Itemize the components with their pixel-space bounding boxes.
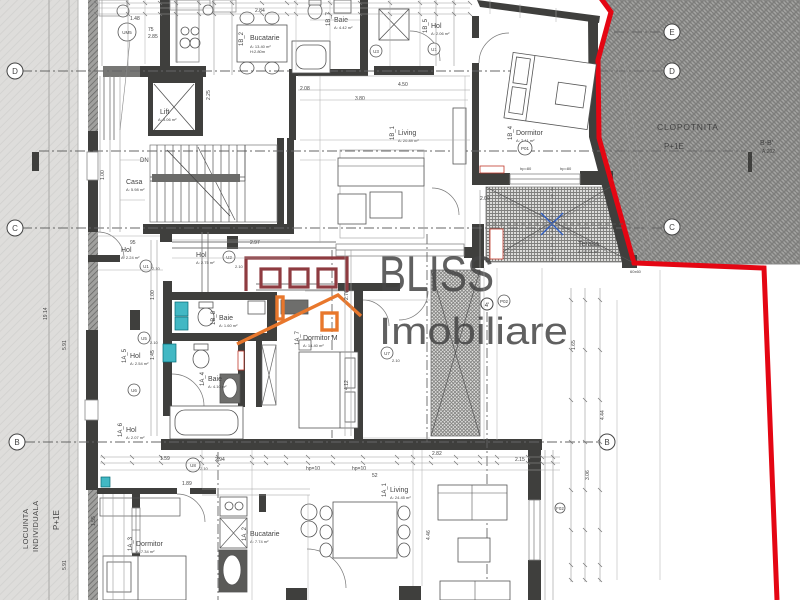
svg-text:A: 14.40 m²: A: 14.40 m²: [303, 343, 324, 348]
svg-text:LOCUINTA: LOCUINTA: [21, 508, 30, 549]
svg-text:BLISS: BLISS: [379, 246, 494, 302]
svg-text:2.15: 2.15: [515, 457, 525, 463]
svg-text:A: 2.06 m²: A: 2.06 m²: [431, 31, 450, 36]
svg-text:A: 2.24 m²: A: 2.24 m²: [121, 255, 140, 260]
svg-text:hp=10: hp=10: [352, 466, 366, 472]
svg-text:4.44: 4.44: [600, 410, 606, 420]
svg-text:Baie: Baie: [208, 376, 222, 383]
svg-text:1B_1: 1B_1: [390, 125, 396, 140]
svg-text:A: 12.21 m²: A: 12.21 m²: [578, 249, 599, 254]
svg-text:1.55: 1.55: [91, 516, 97, 526]
svg-text:A: 5.98 m²: A: 5.98 m²: [126, 187, 145, 192]
svg-text:2.97: 2.97: [250, 240, 260, 246]
svg-text:Hol: Hol: [121, 247, 132, 254]
svg-text:A: 4.42 m²: A: 4.42 m²: [334, 25, 353, 30]
svg-text:Lift: Lift: [160, 109, 169, 116]
svg-text:hp=80: hp=80: [520, 166, 532, 171]
svg-text:Living: Living: [390, 487, 408, 494]
svg-text:A: 20.89 m²: A: 20.89 m²: [398, 138, 419, 143]
svg-text:3.80: 3.80: [355, 96, 365, 102]
svg-text:P02: P02: [500, 299, 509, 304]
svg-text:E: E: [669, 28, 674, 37]
svg-text:1A_6: 1A_6: [118, 422, 124, 437]
svg-text:1B_5: 1B_5: [423, 18, 429, 33]
svg-text:Dormitor: Dormitor: [516, 130, 544, 137]
svg-text:Hol: Hol: [126, 427, 137, 434]
svg-text:5.91: 5.91: [62, 560, 68, 570]
svg-text:B-B': B-B': [760, 140, 773, 147]
svg-text:Hol: Hol: [431, 23, 442, 30]
svg-text:5.91: 5.91: [62, 340, 68, 350]
svg-text:60x60: 60x60: [630, 269, 642, 274]
svg-text:U7: U7: [384, 351, 390, 356]
svg-text:A.202: A.202: [762, 149, 775, 155]
svg-text:Imobiliare: Imobiliare: [379, 311, 568, 353]
svg-text:U2: U2: [226, 255, 232, 260]
svg-text:U8: U8: [190, 463, 196, 468]
svg-text:C: C: [12, 224, 18, 233]
svg-text:1A_1: 1A_1: [382, 482, 388, 497]
svg-text:4.50: 4.50: [398, 82, 408, 88]
svg-text:Casa: Casa: [126, 179, 142, 186]
svg-text:hp=80: hp=80: [560, 166, 572, 171]
svg-text:A: 2.75 m²: A: 2.75 m²: [196, 260, 215, 265]
svg-text:4.46: 4.46: [426, 530, 432, 540]
svg-text:C: C: [669, 223, 675, 232]
svg-text:Baie: Baie: [334, 17, 348, 24]
svg-text:52: 52: [372, 473, 378, 479]
svg-text:2.10: 2.10: [235, 264, 244, 269]
svg-text:1.00: 1.00: [150, 290, 156, 300]
svg-text:3.06: 3.06: [585, 470, 591, 480]
svg-text:P01: P01: [521, 146, 530, 151]
svg-text:1.59: 1.59: [160, 456, 170, 462]
svg-text:A: 3.06 m²: A: 3.06 m²: [158, 117, 177, 122]
svg-text:U1: U1: [431, 47, 437, 52]
svg-text:F02: F02: [556, 506, 564, 511]
svg-text:Dormitor M: Dormitor M: [303, 335, 338, 342]
svg-text:hp=10: hp=10: [306, 466, 320, 472]
svg-text:2.10: 2.10: [392, 358, 401, 363]
svg-text:2.08: 2.08: [300, 86, 310, 92]
svg-text:A: 1.60 m²: A: 1.60 m²: [219, 323, 238, 328]
svg-text:A: 7.74 m²: A: 7.74 m²: [250, 539, 269, 544]
svg-text:1B_7: 1B_7: [326, 11, 332, 26]
svg-text:1.00: 1.00: [100, 170, 106, 180]
svg-text:75: 75: [148, 27, 154, 33]
svg-text:Dormitor: Dormitor: [136, 541, 164, 548]
svg-text:U5: U5: [141, 336, 147, 341]
svg-text:A: 24.45 m²: A: 24.45 m²: [390, 495, 411, 500]
svg-text:D: D: [12, 67, 18, 76]
svg-text:B: B: [604, 438, 609, 447]
svg-text:2.09: 2.09: [480, 196, 490, 202]
svg-text:1A_3: 1A_3: [128, 536, 134, 551]
svg-text:1.48: 1.48: [130, 16, 140, 22]
svg-text:2.84: 2.84: [255, 8, 265, 14]
svg-text:A: 2.54 m²: A: 2.54 m²: [130, 361, 149, 366]
svg-text:1.45: 1.45: [150, 350, 156, 360]
svg-text:CLOPOTNITA: CLOPOTNITA: [657, 122, 719, 132]
svg-text:Living: Living: [398, 130, 416, 137]
svg-text:2.85: 2.85: [148, 34, 158, 40]
svg-text:U6: U6: [131, 388, 137, 393]
svg-text:4': 4': [485, 303, 489, 309]
svg-text:Bucatarie: Bucatarie: [250, 531, 280, 538]
svg-text:1A_2: 1A_2: [242, 526, 248, 541]
svg-text:A: 4.10 m²: A: 4.10 m²: [208, 384, 227, 389]
svg-text:1.65: 1.65: [571, 340, 577, 350]
svg-text:P+1E: P+1E: [52, 510, 61, 530]
svg-text:H:2.80m: H:2.80m: [250, 49, 266, 54]
svg-text:1A_4: 1A_4: [200, 371, 206, 386]
svg-text:Baie: Baie: [219, 315, 233, 322]
svg-text:Hol: Hol: [130, 353, 141, 360]
svg-text:U3: U3: [373, 49, 379, 54]
svg-text:2.94: 2.94: [215, 457, 225, 463]
svg-text:1.89: 1.89: [182, 481, 192, 487]
svg-text:U1: U1: [143, 264, 149, 269]
svg-text:4.12: 4.12: [344, 380, 350, 390]
svg-text:B: B: [14, 438, 19, 447]
svg-text:DN: DN: [140, 158, 149, 164]
svg-text:95: 95: [130, 240, 136, 246]
svg-text:1A_7: 1A_7: [295, 330, 301, 345]
svg-text:A: 2.07 m²: A: 2.07 m²: [126, 435, 145, 440]
svg-text:19.14: 19.14: [43, 307, 49, 320]
svg-text:1B_4: 1B_4: [508, 125, 514, 140]
svg-text:1A_5: 1A_5: [122, 348, 128, 363]
svg-text:1B_2: 1B_2: [239, 31, 245, 46]
svg-text:2.25: 2.25: [206, 90, 212, 100]
svg-text:2.82: 2.82: [432, 451, 442, 457]
svg-text:A: 7.34 m²: A: 7.34 m²: [136, 549, 155, 554]
svg-text:P+1E: P+1E: [664, 142, 684, 151]
svg-text:D: D: [669, 67, 675, 76]
svg-text:UM5: UM5: [122, 30, 132, 35]
svg-text:1B_8: 1B_8: [211, 310, 217, 325]
svg-text:Bucatarie: Bucatarie: [250, 35, 280, 42]
svg-text:INDIVIDUALA: INDIVIDUALA: [31, 501, 40, 553]
svg-text:2.10: 2.10: [150, 340, 159, 345]
svg-text:2.76: 2.76: [344, 290, 350, 300]
